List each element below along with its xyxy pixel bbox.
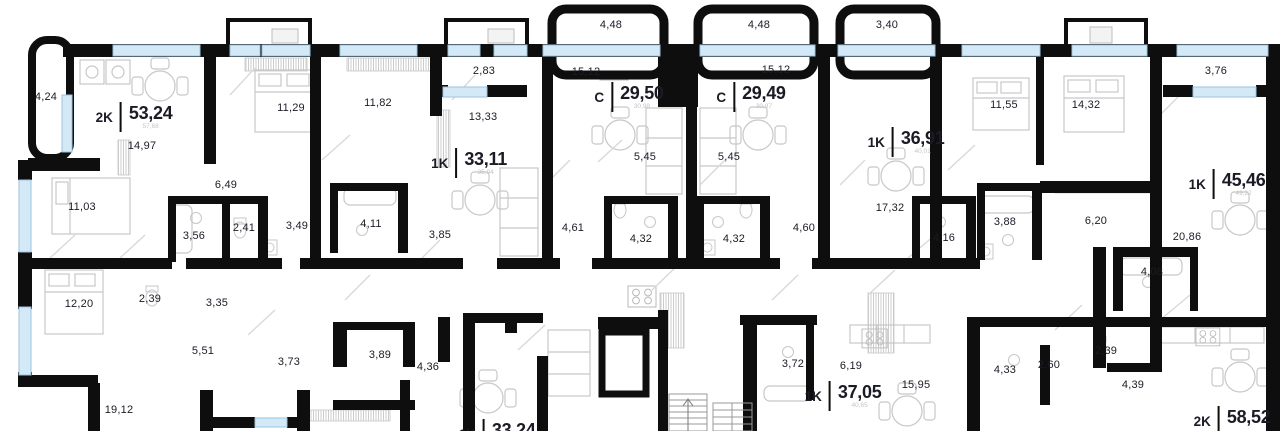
- apartment-area: 58,52: [1227, 408, 1271, 426]
- dim-hall-4-36: 4,36: [417, 361, 439, 373]
- dim-corridor-5-51: 5,51: [192, 345, 214, 357]
- apartment-total-area: 49,22: [1235, 191, 1251, 198]
- label-divider: [455, 148, 457, 178]
- dim-balcony-top-1: 4,48: [600, 19, 622, 31]
- apartment-total-area: 40,65: [851, 403, 867, 410]
- dim-bath-3-88: 3,88: [994, 216, 1016, 228]
- dim-balcony-right: 3,76: [1205, 65, 1227, 77]
- staircase: [669, 394, 752, 431]
- dim-hall-6-20: 6,20: [1085, 215, 1107, 227]
- apartment-type: 1K: [868, 135, 885, 150]
- apartment-label-2k-53: 2K 53,24 57,68: [96, 102, 173, 132]
- floor-plan: 4,24 14,97 11,03 6,49 3,56 2,41 3,49 11,…: [0, 0, 1280, 431]
- apartment-type: 1K: [459, 427, 476, 431]
- apartment-type: C: [594, 90, 604, 105]
- dim-wc-2k53: 2,41: [233, 222, 255, 234]
- dim-balcony-top-3: 3,40: [876, 19, 898, 31]
- dim-kitchen-1k33: 13,33: [469, 111, 498, 123]
- apartment-type: 2K: [1194, 414, 1211, 429]
- washer-icon: [262, 240, 993, 259]
- dim-hall-3-35: 3,35: [206, 297, 228, 309]
- label-divider: [1218, 406, 1220, 431]
- dim-bath-3-73: 3,73: [278, 356, 300, 368]
- apartment-area: 36,91: [901, 129, 945, 147]
- elevator-shaft: [602, 332, 646, 394]
- dim-kitchen-15-95: 15,95: [902, 379, 931, 391]
- apartment-area: 45,46: [1222, 171, 1266, 189]
- dim-living-19-12: 19,12: [105, 404, 134, 416]
- dim-living-1k36: 17,32: [876, 202, 905, 214]
- dim-kitchen-s2950: 5,45: [634, 151, 656, 163]
- dim-bedroom-12-20: 12,20: [65, 298, 94, 310]
- label-divider: [892, 127, 894, 157]
- dim-wc-2-39-left: 2,39: [139, 293, 161, 305]
- apartment-label-2k-58: 2K 58,52: [1194, 406, 1271, 431]
- apartment-area: 29,50: [620, 84, 664, 102]
- dim-hall-2k53: 6,49: [215, 179, 237, 191]
- apartment-label-1k-33: 1K 33,11 35,94: [431, 148, 507, 178]
- apartment-type: 1K: [1189, 177, 1206, 192]
- dim-living-20-86: 20,86: [1173, 231, 1202, 243]
- dim-hall-2-60: 2,60: [1038, 359, 1060, 371]
- apartment-label-1k-37: 1K 37,05 40,65: [805, 381, 882, 411]
- label-divider: [483, 419, 485, 431]
- dim-bedroom-11-82: 11,82: [364, 97, 392, 109]
- dim-bedroom-2k53: 11,03: [68, 201, 96, 213]
- label-divider: [733, 82, 735, 112]
- label-divider: [611, 82, 613, 112]
- label-divider: [829, 381, 831, 411]
- dim-hall-6-19: 6,19: [840, 360, 862, 372]
- apartment-area: 37,05: [838, 383, 882, 401]
- apartment-total-area: 40,01: [914, 149, 930, 156]
- dim-bath-3-89: 3,89: [369, 349, 391, 361]
- dim-balcony-top-2: 4,48: [748, 19, 770, 31]
- apartment-total-area: 30,98: [634, 104, 650, 111]
- dim-bedroom-14-32: 14,32: [1072, 99, 1101, 111]
- label-divider: [120, 102, 122, 132]
- dim-bath-2k53: 3,56: [183, 230, 205, 242]
- dim-loggia-1k33: 2,83: [473, 65, 495, 77]
- apartment-type: 1K: [431, 156, 448, 171]
- label-divider: [1213, 169, 1215, 199]
- dim-kitchen-s2949: 5,45: [718, 151, 740, 163]
- dim-wc-2-39-right: 2,39: [1095, 345, 1117, 357]
- dim-living-s2950: 15,12: [572, 66, 601, 78]
- apartment-total-area: 57,68: [142, 124, 158, 131]
- apartment-label-1k-45: 1K 45,46 49,22: [1189, 169, 1266, 199]
- dim-bath-s2949: 4,32: [723, 233, 745, 245]
- dim-balcony-left: 4,24: [35, 91, 57, 103]
- apartment-label-s-2949: C 29,49 30,97: [716, 82, 785, 112]
- dim-bath-1k33: 4,11: [360, 218, 381, 230]
- dim-kitchen-living-2k53: 14,97: [128, 140, 157, 152]
- dim-hall2-2k53: 3,49: [286, 220, 308, 232]
- dim-bath-4-33: 4,33: [994, 364, 1016, 376]
- dim-hall-1k33: 3,85: [429, 229, 451, 241]
- dim-hall-4-39: 4,39: [1122, 379, 1144, 391]
- dim-hall-s2950: 4,61: [562, 222, 584, 234]
- apartment-type: C: [716, 90, 726, 105]
- apartment-total-area: 30,97: [756, 104, 772, 111]
- dim-living-s2949: 15,12: [762, 64, 791, 76]
- apartment-label-1k-36: 1K 36,91 40,01: [868, 127, 945, 157]
- apartment-area: 33,11: [464, 150, 507, 168]
- apartment-type: 2K: [96, 110, 113, 125]
- apartment-label-s-2950: C 29,50 30,98: [594, 82, 663, 112]
- apartment-area: 53,24: [129, 104, 173, 122]
- dim-bedroom-11-29: 11,29: [277, 102, 305, 114]
- apartment-area: 33,24: [492, 421, 536, 431]
- apartment-label-1k-33b: 1K 33,24: [459, 419, 536, 431]
- dim-hall-s2949: 4,60: [793, 222, 815, 234]
- dim-bedroom-11-55: 11,55: [990, 99, 1018, 111]
- dim-bath-3-72: 3,72: [782, 358, 804, 370]
- apartment-total-area: 35,94: [477, 170, 493, 177]
- dim-bath-4-08: 4,08: [1141, 266, 1163, 278]
- apartment-type: 1K: [805, 389, 822, 404]
- balconies: [32, 9, 1146, 158]
- dim-hall-1k36: 4,16: [933, 232, 955, 244]
- apartment-area: 29,49: [742, 84, 786, 102]
- dim-bath-s2950: 4,32: [630, 233, 652, 245]
